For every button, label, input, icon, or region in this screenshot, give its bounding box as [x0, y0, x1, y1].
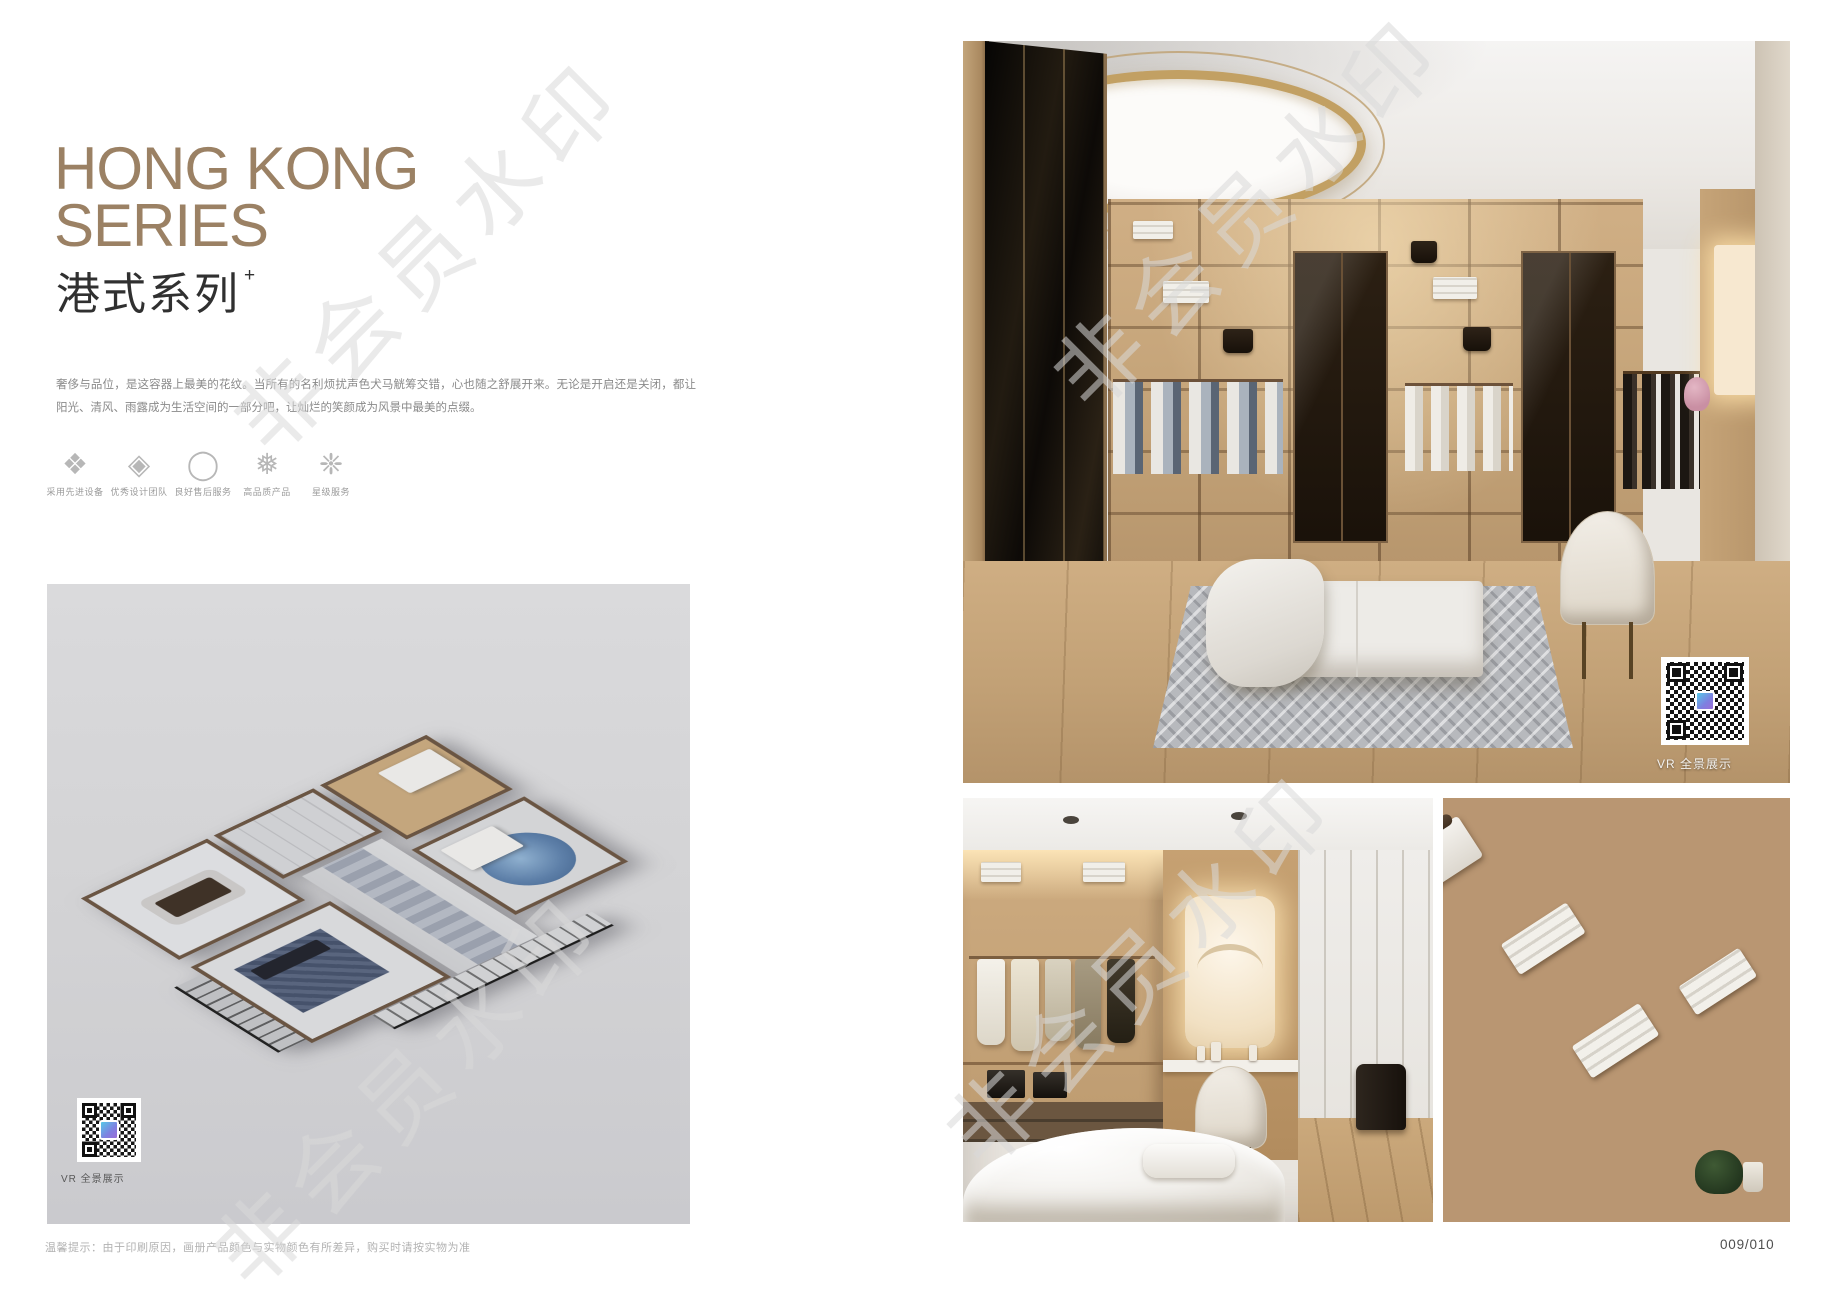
feature-item-design-team: ◈ 优秀设计团队 — [107, 447, 171, 498]
folded-clothes-stack — [1572, 1003, 1660, 1078]
series-title-line2: SERIES — [54, 192, 268, 259]
vr-panorama-label: VR 全景展示 — [1657, 755, 1777, 772]
feature-item-equipment: ❖ 采用先进设备 — [43, 447, 107, 498]
wood-floor — [1298, 1118, 1433, 1222]
page-number: 009/010 — [1720, 1237, 1774, 1252]
display-cabinet-left — [1293, 251, 1388, 543]
qr-finder-icon — [1724, 663, 1743, 682]
open-wardrobe — [963, 850, 1163, 1142]
floor-plan-panel: VR 全景展示 — [47, 584, 690, 1224]
qr-code — [1661, 657, 1749, 745]
display-cabinet-right — [1521, 251, 1616, 543]
hanging-clothes-middle — [1405, 383, 1513, 471]
feature-label: 优秀设计团队 — [110, 485, 167, 498]
snowflake-icon: ❅ — [255, 447, 279, 481]
series-title-cn-text: 港式系列 — [56, 270, 240, 319]
petal-diamond-icon: ❖ — [62, 447, 88, 481]
feature-row: ❖ 采用先进设备 ◈ 优秀设计团队 ◯ 良好售后服务 ❅ 高品质产品 ❈ 星级服… — [43, 447, 363, 498]
feature-label: 星级服务 — [312, 485, 350, 498]
series-title-en: HONG KONGSERIES — [54, 140, 418, 254]
folded-clothes-stack — [1083, 862, 1125, 882]
plus-superscript: + — [244, 265, 257, 286]
flower-vase — [1684, 377, 1710, 411]
mirror-side-panel — [1755, 41, 1790, 613]
hanging-clothes-left — [1113, 379, 1283, 474]
series-description: 奢侈与品位，是这容器上最美的花纹。当所有的名利烦扰声色犬马觥筹交错，心也随之舒展… — [56, 374, 696, 420]
vr-panorama-label: VR 全景展示 — [61, 1170, 161, 1185]
perfume-bottle — [1197, 1046, 1205, 1061]
folded-clothes-stack — [981, 862, 1021, 882]
chair-legs — [1577, 622, 1638, 679]
shelf-divider — [963, 1062, 1163, 1065]
handbag — [1411, 241, 1437, 263]
handbag — [1463, 327, 1491, 351]
woven-diamond-icon: ◈ — [128, 447, 150, 481]
downlight-icon — [1231, 812, 1247, 820]
perfume-bottle — [1249, 1045, 1257, 1061]
folded-clothes-stack — [1163, 281, 1209, 303]
folded-clothes-stack — [1133, 221, 1173, 239]
hallway-view — [1298, 850, 1433, 1222]
vanity-chair — [1560, 511, 1655, 679]
storage-box — [987, 1070, 1025, 1098]
bed-duvet — [963, 1128, 1285, 1222]
hanging-garment — [1075, 959, 1101, 1049]
ceiling — [963, 798, 1433, 850]
folded-clothes-stack — [1433, 277, 1477, 299]
qr-finder-icon — [1667, 663, 1686, 682]
chair-back — [1560, 511, 1655, 625]
ring-swirl-icon: ◯ — [187, 447, 219, 481]
star-flower-icon: ❈ — [319, 447, 343, 481]
qr-center-logo-icon — [99, 1120, 119, 1140]
folded-clothes-stack — [1678, 948, 1757, 1016]
floorplan-bed — [378, 749, 462, 794]
shelf-closeup-photo — [1443, 798, 1790, 1222]
storage-box — [1033, 1072, 1067, 1098]
folded-clothes-stack — [1501, 902, 1586, 975]
lighted-mirror — [1185, 896, 1275, 1048]
feature-label: 采用先进设备 — [46, 485, 103, 498]
perfume-bottle — [1211, 1042, 1221, 1061]
storage-case — [1443, 816, 1483, 909]
feature-label: 良好售后服务 — [174, 485, 231, 498]
main-closet-photo: VR 全景展示 — [963, 41, 1790, 783]
small-vase — [1743, 1162, 1763, 1192]
hanging-garment — [1011, 959, 1039, 1051]
handbag — [1223, 329, 1253, 353]
series-title-cn: 港式系列+ — [56, 258, 257, 322]
qr-finder-icon — [1667, 720, 1686, 739]
potted-plant — [1695, 1150, 1743, 1194]
downlight-icon — [1063, 816, 1079, 824]
pillow — [1143, 1144, 1235, 1178]
dressing-area-photo — [963, 798, 1433, 1222]
qr-finder-icon — [82, 1142, 97, 1157]
qr-code — [77, 1098, 141, 1162]
qr-center-logo-icon — [1695, 691, 1715, 711]
hanging-garment — [977, 959, 1005, 1045]
feature-item-after-sales: ◯ 良好售后服务 — [171, 447, 235, 498]
draped-blanket — [1206, 559, 1324, 687]
qr-finder-icon — [121, 1103, 136, 1118]
print-disclaimer: 温馨提示：由于印刷原因，画册产品颜色与实物颜色有所差异，购买时请按实物为准 — [45, 1239, 471, 1255]
feature-item-quality: ❅ 高品质产品 — [235, 447, 299, 498]
hanging-garment — [1045, 959, 1071, 1041]
floorplan-dining-table — [154, 877, 233, 918]
hanging-garment — [1107, 959, 1135, 1043]
feature-item-star-service: ❈ 星级服务 — [299, 447, 363, 498]
floor-plan-render — [81, 735, 657, 1043]
qr-finder-icon — [82, 1103, 97, 1118]
drum-side-table — [1356, 1064, 1406, 1130]
feature-label: 高品质产品 — [243, 485, 291, 498]
